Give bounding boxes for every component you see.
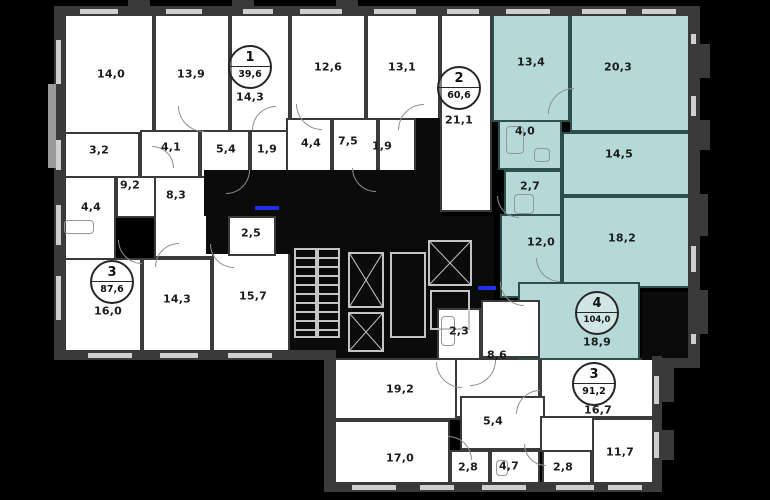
room-area-label: 8,6: [487, 349, 507, 362]
balcony-stub: [690, 120, 710, 150]
room-area-label: 13,4: [517, 56, 545, 69]
room-area-label: 2,7: [520, 180, 540, 193]
room-area-label: 16,0: [94, 305, 122, 318]
shaft-strip: [416, 118, 440, 216]
balcony-stub: [662, 430, 674, 460]
balcony-stub: [690, 194, 708, 236]
void-right: [642, 292, 690, 360]
window-icon: [691, 96, 696, 116]
room-area-label: 2,5: [241, 227, 261, 240]
room-area-label: 9,2: [120, 179, 140, 192]
room-area-label: 2,8: [553, 461, 573, 474]
wall-segment: [48, 84, 56, 168]
entry-marker: [478, 286, 496, 290]
room-area-label: 18,9: [583, 336, 611, 349]
room-area-label: 20,3: [604, 61, 632, 74]
apartment-badge-4[interactable]: 4104,0: [575, 291, 619, 335]
room-area-label: 4,7: [499, 460, 519, 473]
balcony-stub: [128, 0, 150, 8]
window-icon: [352, 485, 396, 490]
window-icon: [506, 9, 550, 14]
room-area-label: 5,4: [216, 143, 236, 156]
window-icon: [56, 140, 61, 170]
room-area-label: 2,8: [458, 461, 478, 474]
apartment-total-area: 104,0: [577, 313, 617, 328]
floor-plan: 14,013,914,312,613,121,113,420,33,24,15,…: [0, 0, 770, 500]
balcony-stub: [690, 290, 708, 334]
window-icon: [482, 485, 526, 490]
window-icon: [654, 376, 659, 404]
room-area-label: 5,4: [483, 415, 503, 428]
room-14-3-b: [142, 258, 212, 354]
window-icon: [582, 9, 626, 14]
window-icon: [374, 9, 416, 14]
apartment-number: 3: [92, 264, 132, 282]
window-icon: [243, 9, 273, 14]
room-area-label: 1,9: [257, 143, 277, 156]
room-area-label: 4,4: [301, 137, 321, 150]
window-icon: [88, 353, 132, 358]
room-area-label: 7,5: [338, 135, 358, 148]
room-area-label: 14,5: [605, 148, 633, 161]
window-icon: [166, 9, 202, 14]
room-area-label: 8,3: [166, 189, 186, 202]
window-icon: [447, 9, 479, 14]
entry-marker: [255, 206, 279, 210]
apartment-total-area: 39,6: [230, 67, 270, 82]
washer-icon: [534, 148, 550, 162]
window-icon: [56, 276, 61, 320]
apartment-number: 2: [439, 70, 479, 88]
room-area-label: 17,0: [386, 452, 414, 465]
apartment-number: 1: [230, 49, 270, 67]
apartment-total-area: 87,6: [92, 282, 132, 297]
room-area-label: 2,3: [449, 325, 469, 338]
outer-wall: [652, 358, 700, 368]
room-area-label: 4,0: [515, 125, 535, 138]
balcony-stub: [336, 0, 358, 8]
room-area-label: 1,9: [372, 140, 392, 153]
apartment-badge-1[interactable]: 139,6: [228, 45, 272, 89]
outer-wall: [324, 350, 336, 492]
window-icon: [556, 485, 594, 490]
room-4-4-left: [62, 176, 116, 260]
balcony-stub: [232, 0, 254, 8]
corridor-niche-b: [276, 216, 290, 254]
room-area-label: 13,9: [177, 68, 205, 81]
room-area-label: 14,3: [236, 91, 264, 104]
room-area-label: 14,3: [163, 293, 191, 306]
room-area-label: 12,6: [314, 61, 342, 74]
apartment-badge-2[interactable]: 260,6: [437, 66, 481, 110]
window-icon: [56, 40, 61, 84]
room-area-label: 21,1: [445, 114, 473, 127]
apartment-number: 4: [577, 295, 617, 313]
stair-flight-b: [317, 248, 340, 338]
window-icon: [654, 432, 659, 458]
apartment-badge-3[interactable]: 387,6: [90, 260, 134, 304]
room-area-label: 4,1: [161, 141, 181, 154]
window-icon: [642, 9, 676, 14]
room-area-label: 14,0: [97, 68, 125, 81]
window-icon: [56, 205, 61, 245]
window-icon: [300, 9, 342, 14]
apartment-total-area: 60,6: [439, 88, 479, 103]
window-icon: [608, 485, 642, 490]
window-icon: [160, 353, 198, 358]
hall-sliver: [540, 416, 594, 452]
room-4-1: [140, 130, 200, 178]
stair-flight-a: [294, 248, 317, 338]
elevator-a: [348, 252, 384, 308]
balcony-stub: [662, 366, 674, 402]
room-area-label: 13,1: [388, 61, 416, 74]
apt4-room-14-5[interactable]: [562, 132, 690, 196]
balcony-stub: [688, 44, 710, 78]
room-area-label: 11,7: [606, 446, 634, 459]
bathtub-icon: [64, 220, 94, 234]
elevator-b: [348, 312, 384, 352]
elevator-c: [428, 240, 472, 286]
window-icon: [691, 246, 696, 272]
window-icon: [420, 485, 454, 490]
window-icon: [228, 353, 272, 358]
room-area-label: 19,2: [386, 383, 414, 396]
apartment-badge-3[interactable]: 391,2: [572, 362, 616, 406]
room-area-label: 15,7: [239, 290, 267, 303]
room-area-label: 3,2: [89, 144, 109, 157]
apartment-total-area: 91,2: [574, 384, 614, 399]
room-area-label: 18,2: [608, 232, 636, 245]
room-area-label: 4,4: [81, 201, 101, 214]
room-area-label: 12,0: [527, 236, 555, 249]
window-icon: [80, 9, 118, 14]
apartment-number: 3: [574, 366, 614, 384]
shaft-box: [390, 252, 426, 338]
